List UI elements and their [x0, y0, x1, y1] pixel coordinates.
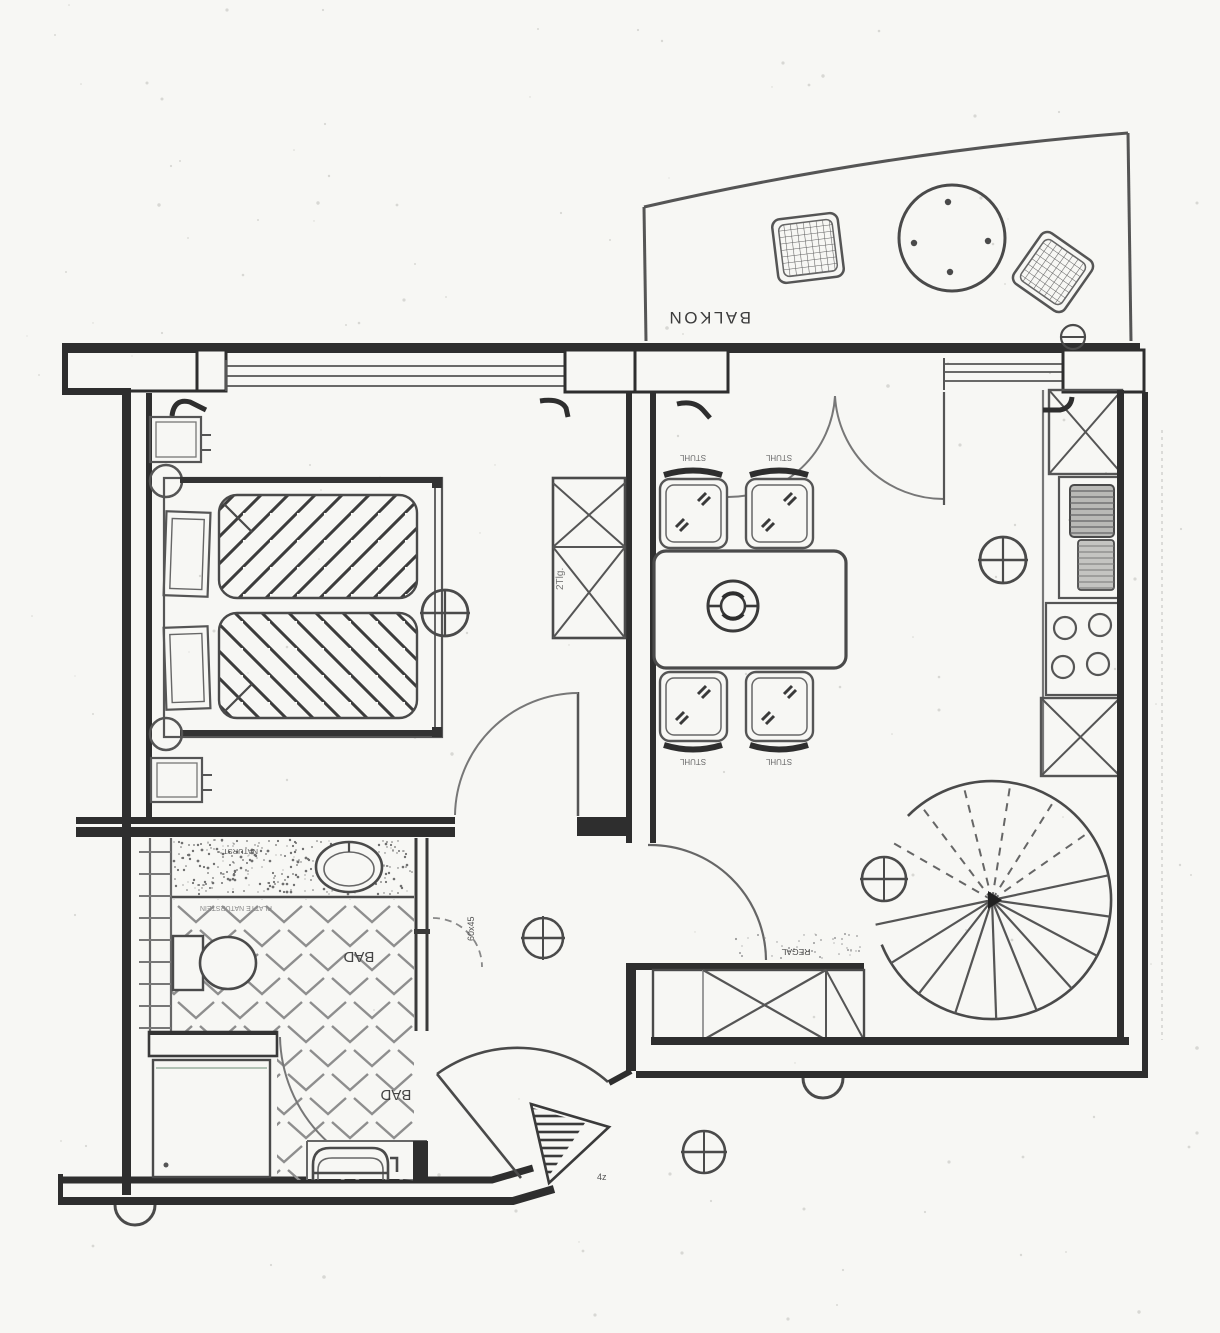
svg-text:2Tlg.: 2Tlg. [555, 568, 566, 590]
svg-text:STUHL: STUHL [679, 757, 706, 766]
svg-text:BAD: BAD [380, 1086, 411, 1103]
svg-text:BAD: BAD [343, 948, 374, 965]
svg-text:STUHL: STUHL [679, 453, 706, 462]
svg-text:NATURST.: NATURST. [222, 847, 258, 856]
svg-text:BALKON: BALKON [667, 308, 751, 327]
svg-text:60x45: 60x45 [466, 916, 476, 941]
svg-text:4z: 4z [597, 1172, 607, 1182]
svg-text:REGAL: REGAL [781, 947, 810, 957]
svg-text:STUHL: STUHL [765, 757, 792, 766]
svg-text:STUHL: STUHL [765, 453, 792, 462]
